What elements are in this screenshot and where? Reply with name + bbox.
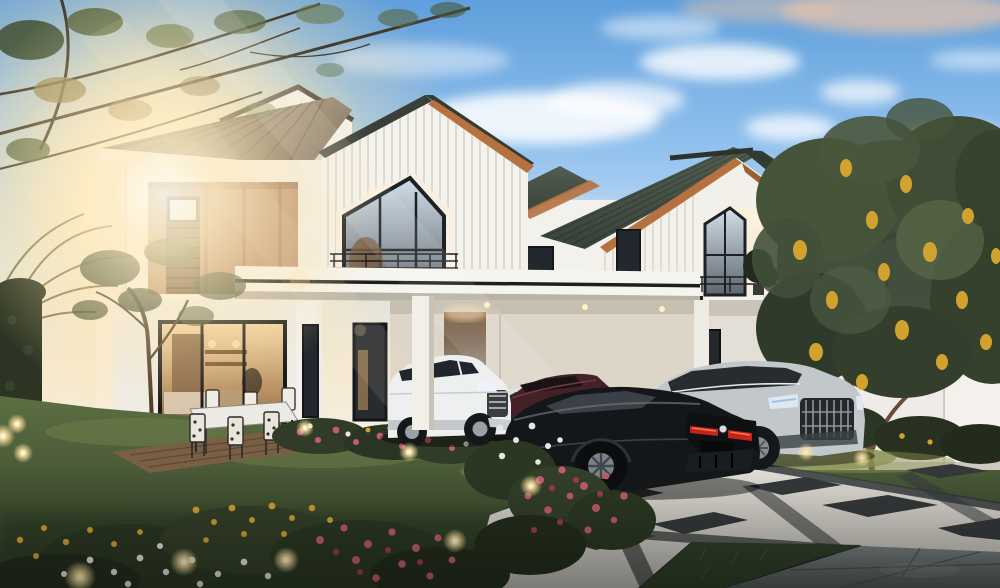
garden-light (399, 442, 419, 462)
plate-recess (700, 441, 734, 452)
garden-light (853, 449, 871, 467)
downlight (659, 306, 665, 312)
bmw-roundel (719, 425, 727, 433)
garden-light (797, 443, 815, 461)
garden-light (7, 414, 27, 434)
rendered-photo (0, 0, 1000, 588)
garden-light (13, 443, 33, 463)
garden-light (296, 419, 314, 437)
suv-grille (487, 390, 508, 417)
carport-column-shadow (429, 296, 434, 430)
vignette (0, 470, 1000, 588)
downlight (582, 304, 588, 310)
